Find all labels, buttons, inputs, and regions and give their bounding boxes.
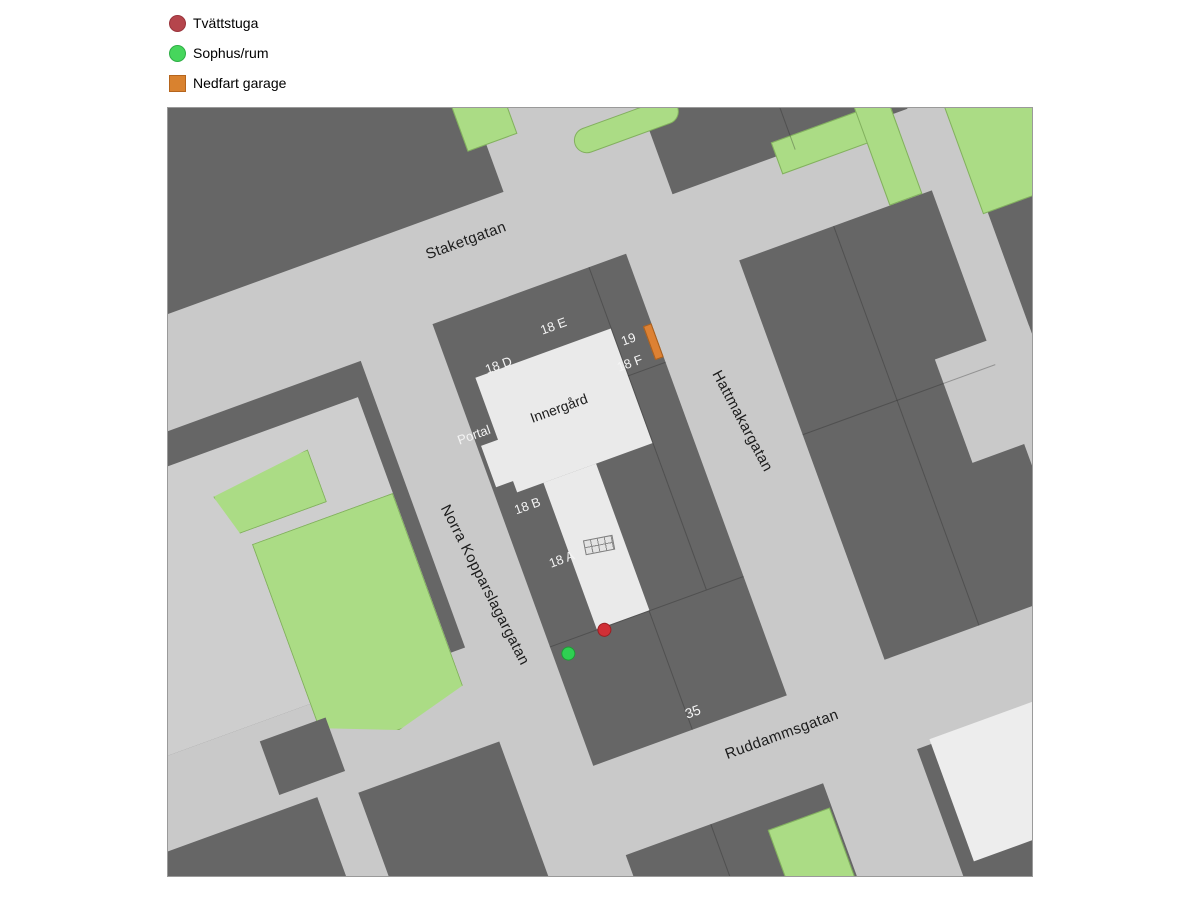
tvattstuga-marker-icon bbox=[169, 15, 186, 32]
map-rotated-grid: Staketgatan Hattmakargatan Norra Koppars… bbox=[168, 108, 1032, 876]
street-label-ruddammsgatan: Ruddammsgatan bbox=[723, 706, 841, 763]
light-building-southeast bbox=[929, 691, 1032, 861]
building-small-by-green bbox=[260, 717, 345, 795]
green-area-northeast-corner bbox=[935, 108, 1032, 214]
legend: Tvättstuga Sophus/rum Nedfart garage bbox=[169, 14, 286, 92]
street-label-hattmakargatan: Hattmakargatan bbox=[708, 367, 776, 474]
site-map: Staketgatan Hattmakargatan Norra Koppars… bbox=[168, 108, 1032, 876]
garage-marker-icon bbox=[169, 75, 186, 92]
legend-item-nedfart-garage: Nedfart garage bbox=[169, 74, 286, 92]
green-area-west-large bbox=[252, 493, 470, 756]
street-label-staketgatan: Staketgatan bbox=[423, 218, 508, 263]
sophus-marker-icon bbox=[169, 45, 186, 62]
building-block-southwest-2 bbox=[358, 742, 595, 876]
legend-item-sophus: Sophus/rum bbox=[169, 44, 286, 62]
legend-label: Tvättstuga bbox=[193, 14, 258, 32]
legend-label: Sophus/rum bbox=[193, 44, 268, 62]
legend-item-tvattstuga: Tvättstuga bbox=[169, 14, 286, 32]
legend-label: Nedfart garage bbox=[193, 74, 286, 92]
